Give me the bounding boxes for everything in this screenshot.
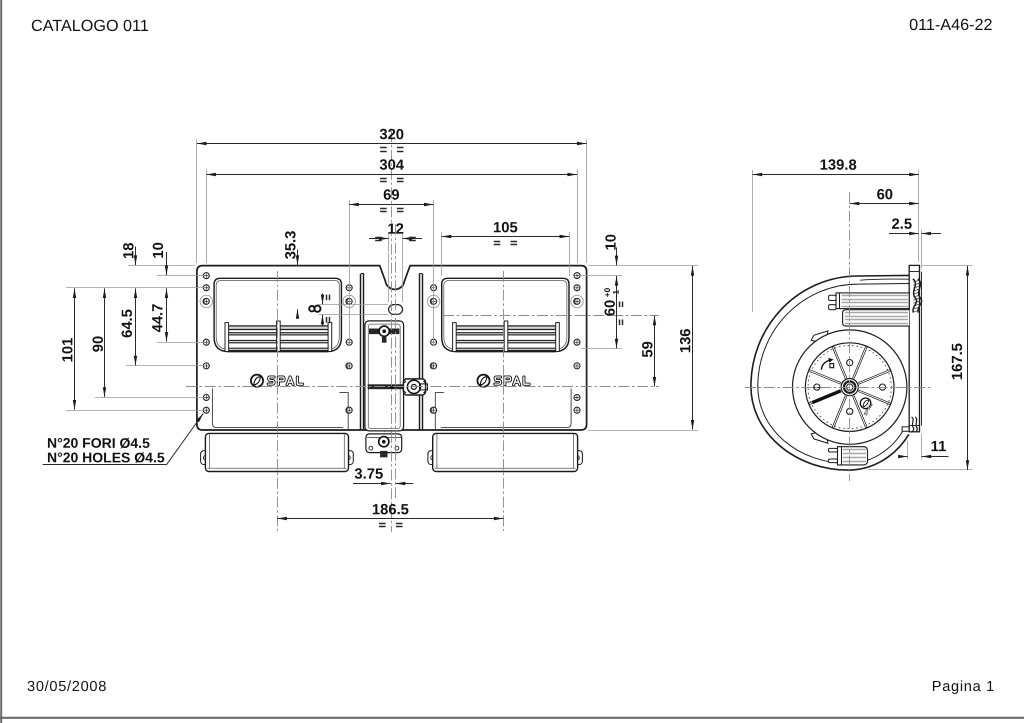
svg-text:101: 101 bbox=[60, 338, 76, 363]
svg-text:64.5: 64.5 bbox=[120, 309, 136, 338]
svg-text:11: 11 bbox=[931, 439, 947, 455]
svg-text:2.5: 2.5 bbox=[892, 217, 913, 233]
svg-text:60: 60 bbox=[603, 300, 619, 316]
svg-text:18: 18 bbox=[121, 242, 137, 258]
svg-text:69: 69 bbox=[383, 188, 399, 204]
svg-text:320: 320 bbox=[379, 127, 404, 143]
svg-text:304: 304 bbox=[379, 158, 404, 174]
svg-text:-1: -1 bbox=[612, 289, 621, 297]
svg-text:90: 90 bbox=[91, 336, 107, 352]
svg-text:30/05/2008: 30/05/2008 bbox=[27, 679, 107, 695]
svg-text:105: 105 bbox=[493, 220, 518, 236]
svg-text:186.5: 186.5 bbox=[372, 502, 409, 518]
svg-text:167.5: 167.5 bbox=[950, 343, 966, 380]
svg-text:35.3: 35.3 bbox=[283, 231, 299, 260]
svg-text:136: 136 bbox=[678, 328, 694, 353]
svg-text:10: 10 bbox=[604, 234, 620, 250]
svg-text:3.75: 3.75 bbox=[354, 467, 383, 483]
svg-text:Pagina 1: Pagina 1 bbox=[932, 679, 995, 695]
svg-text:12: 12 bbox=[387, 222, 403, 238]
svg-text:N°20 HOLES Ø4.5: N°20 HOLES Ø4.5 bbox=[47, 449, 165, 465]
svg-text:10: 10 bbox=[151, 242, 167, 258]
svg-text:60: 60 bbox=[877, 187, 893, 203]
svg-text:59: 59 bbox=[640, 341, 656, 357]
svg-text:44.7: 44.7 bbox=[150, 304, 166, 333]
svg-text:CATALOGO 011: CATALOGO 011 bbox=[31, 17, 149, 35]
svg-text:139.8: 139.8 bbox=[820, 158, 857, 174]
svg-text:011-A46-22: 011-A46-22 bbox=[909, 16, 992, 34]
